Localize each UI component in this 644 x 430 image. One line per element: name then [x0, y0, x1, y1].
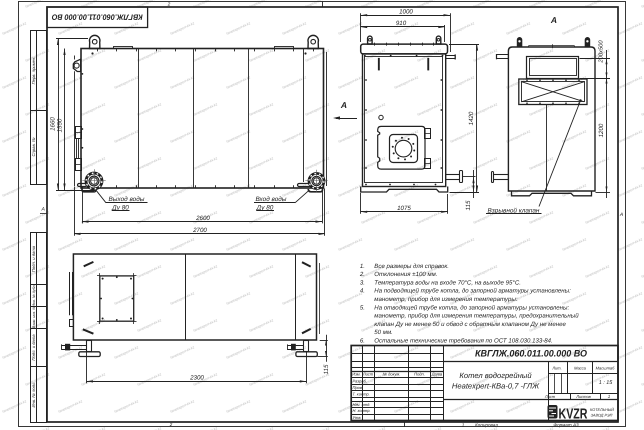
svg-text:heatexpert-kv.kz: heatexpert-kv.kz	[450, 237, 476, 252]
svg-text:Подп.: Подп.	[414, 372, 425, 377]
svg-text:heatexpert-kv.kz: heatexpert-kv.kz	[473, 264, 499, 279]
svg-text:Изм.: Изм.	[352, 372, 361, 377]
svg-text:Остальные технические требован: Остальные технические требования по ОСТ …	[374, 338, 552, 345]
svg-text:Масштаб: Масштаб	[596, 366, 615, 371]
svg-text:heatexpert-kv.kz: heatexpert-kv.kz	[417, 48, 443, 63]
svg-text:heatexpert-kv.kz: heatexpert-kv.kz	[394, 129, 420, 144]
svg-text:heatexpert-kv.kz: heatexpert-kv.kz	[338, 129, 364, 144]
svg-text:КВГЛЖ.060.011.00.000 ВО: КВГЛЖ.060.011.00.000 ВО	[52, 13, 143, 22]
svg-text:heatexpert-kv.kz: heatexpert-kv.kz	[226, 21, 252, 36]
svg-text:2300: 2300	[189, 375, 204, 382]
svg-text:1.: 1.	[360, 263, 365, 270]
svg-text:heatexpert-kv.kz: heatexpert-kv.kz	[114, 129, 140, 144]
svg-text:heatexpert-kv.kz: heatexpert-kv.kz	[2, 129, 28, 144]
svg-text:Пров.: Пров.	[353, 385, 364, 390]
svg-text:heatexpert-kv.kz: heatexpert-kv.kz	[585, 264, 611, 279]
svg-text:heatexpert-kv.kz: heatexpert-kv.kz	[338, 183, 364, 198]
svg-text:heatexpert-kv.kz: heatexpert-kv.kz	[193, 102, 219, 117]
svg-text:Нач. отд.: Нач. отд.	[353, 402, 371, 407]
svg-text:А: А	[550, 15, 557, 25]
svg-text:heatexpert-kv.kz: heatexpert-kv.kz	[137, 102, 163, 117]
svg-text:Лист: Лист	[362, 372, 374, 377]
svg-text:heatexpert-kv.kz: heatexpert-kv.kz	[506, 399, 532, 414]
svg-text:heatexpert-kv.kz: heatexpert-kv.kz	[114, 399, 140, 414]
svg-text:Лист: Лист	[544, 394, 556, 399]
svg-text:Перв. примен.: Перв. примен.	[31, 57, 36, 85]
svg-text:5.: 5.	[360, 304, 365, 311]
svg-text:ЗАВОД РЭП: ЗАВОД РЭП	[591, 414, 613, 418]
svg-text:heatexpert-kv.kz: heatexpert-kv.kz	[394, 183, 420, 198]
svg-text:На подводящей трубе котла, до: На подводящей трубе котла, до запорной а…	[374, 288, 571, 295]
svg-text:heatexpert-kv.kz: heatexpert-kv.kz	[193, 48, 219, 63]
svg-text:2: 2	[167, 2, 171, 7]
svg-text:heatexpert-kv.kz: heatexpert-kv.kz	[450, 183, 476, 198]
svg-text:1550: 1550	[57, 118, 64, 132]
svg-text:50 мм.: 50 мм.	[374, 329, 393, 336]
svg-text:heatexpert-kv.kz: heatexpert-kv.kz	[282, 21, 308, 36]
svg-text:heatexpert-kv.kz: heatexpert-kv.kz	[137, 264, 163, 279]
svg-text:heatexpert-kv.kz: heatexpert-kv.kz	[193, 156, 219, 171]
svg-text:heatexpert-kv.kz: heatexpert-kv.kz	[170, 291, 196, 306]
svg-text:heatexpert-kv.kz: heatexpert-kv.kz	[618, 21, 644, 36]
svg-text:Взам. инв. №: Взам. инв. №	[32, 306, 36, 328]
svg-text:2.: 2.	[359, 271, 365, 278]
svg-text:heatexpert-kv.kz: heatexpert-kv.kz	[618, 345, 644, 360]
svg-text:heatexpert-kv.kz: heatexpert-kv.kz	[193, 318, 219, 333]
svg-text:heatexpert-kv.kz: heatexpert-kv.kz	[506, 21, 532, 36]
svg-text:heatexpert-kv.kz: heatexpert-kv.kz	[282, 291, 308, 306]
svg-text:heatexpert-kv.kz: heatexpert-kv.kz	[114, 237, 140, 252]
svg-text:1 : 15: 1 : 15	[599, 380, 613, 386]
svg-text:heatexpert-kv.kz: heatexpert-kv.kz	[58, 291, 84, 306]
svg-text:Котел водогрейный: Котел водогрейный	[459, 371, 532, 380]
svg-text:heatexpert-kv.kz: heatexpert-kv.kz	[506, 237, 532, 252]
svg-text:heatexpert-kv.kz: heatexpert-kv.kz	[562, 129, 588, 144]
svg-text:heatexpert-kv.kz: heatexpert-kv.kz	[226, 183, 252, 198]
svg-text:heatexpert-kv.kz: heatexpert-kv.kz	[81, 156, 107, 171]
svg-text:115: 115	[465, 200, 472, 210]
svg-text:heatexpert-kv.kz: heatexpert-kv.kz	[2, 21, 28, 36]
svg-text:Дата: Дата	[431, 372, 443, 377]
svg-text:heatexpert-kv.kz: heatexpert-kv.kz	[506, 129, 532, 144]
svg-text:heatexpert-kv.kz: heatexpert-kv.kz	[81, 48, 107, 63]
svg-text:heatexpert-kv.kz: heatexpert-kv.kz	[529, 48, 555, 63]
svg-text:heatexpert-kv.kz: heatexpert-kv.kz	[226, 129, 252, 144]
svg-text:Масса: Масса	[574, 366, 587, 371]
svg-text:6.: 6.	[360, 338, 365, 345]
svg-text:Утв.: Утв.	[353, 415, 362, 420]
svg-text:2: 2	[169, 422, 173, 427]
svg-text:heatexpert-kv.kz: heatexpert-kv.kz	[114, 345, 140, 360]
svg-text:heatexpert-kv.kz: heatexpert-kv.kz	[450, 21, 476, 36]
svg-text:На отводящей трубе котла, до з: На отводящей трубе котла, до запорной ар…	[374, 304, 569, 311]
svg-text:heatexpert-kv.kz: heatexpert-kv.kz	[417, 102, 443, 117]
svg-text:Лит.: Лит.	[551, 366, 561, 371]
svg-text:Т. контр.: Т. контр.	[353, 391, 370, 396]
svg-text:3.: 3.	[360, 279, 365, 286]
svg-text:heatexpert-kv.kz: heatexpert-kv.kz	[394, 345, 420, 360]
svg-text:Инв. № дубл.: Инв. № дубл.	[32, 284, 36, 306]
svg-text:Справ. №: Справ. №	[31, 137, 36, 156]
svg-text:heatexpert-kv.kz: heatexpert-kv.kz	[137, 318, 163, 333]
svg-text:манометр, прибор для измерения: манометр, прибор для измерения температу…	[374, 313, 579, 320]
svg-text:А: А	[619, 212, 624, 218]
svg-text:heatexpert-kv.kz: heatexpert-kv.kz	[170, 345, 196, 360]
svg-text:2600: 2600	[195, 215, 210, 222]
svg-text:Копировал: Копировал	[475, 422, 498, 427]
svg-text:heatexpert-kv.kz: heatexpert-kv.kz	[450, 75, 476, 90]
svg-text:heatexpert-kv.kz: heatexpert-kv.kz	[114, 75, 140, 90]
svg-text:heatexpert-kv.kz: heatexpert-kv.kz	[249, 264, 275, 279]
svg-text:heatexpert-kv.kz: heatexpert-kv.kz	[81, 102, 107, 117]
svg-text:heatexpert-kv.kz: heatexpert-kv.kz	[450, 345, 476, 360]
svg-text:Н. контр.: Н. контр.	[353, 408, 371, 413]
svg-text:Вход воды: Вход воды	[255, 196, 286, 203]
svg-text:Подп. и дата: Подп. и дата	[31, 245, 36, 272]
svg-text:heatexpert-kv.kz: heatexpert-kv.kz	[249, 318, 275, 333]
svg-text:heatexpert-kv.kz: heatexpert-kv.kz	[226, 237, 252, 252]
svg-text:heatexpert-kv.kz: heatexpert-kv.kz	[618, 399, 644, 414]
svg-text:Подп. и дата: Подп. и дата	[31, 334, 36, 361]
svg-text:KVZR: KVZR	[559, 407, 588, 423]
svg-text:клапан Ду не менее 50 и обвод: клапан Ду не менее 50 и обвод с обратным…	[374, 321, 566, 328]
svg-text:heatexpert-kv.kz: heatexpert-kv.kz	[618, 129, 644, 144]
svg-text:heatexpert-kv.kz: heatexpert-kv.kz	[81, 210, 107, 225]
svg-text:heatexpert-kv.kz: heatexpert-kv.kz	[338, 75, 364, 90]
svg-text:heatexpert-kv.kz: heatexpert-kv.kz	[618, 237, 644, 252]
svg-text:1: 1	[462, 422, 465, 427]
svg-text:heatexpert-kv.kz: heatexpert-kv.kz	[170, 183, 196, 198]
svg-text:1660: 1660	[50, 117, 57, 131]
svg-text:А: А	[41, 207, 46, 213]
svg-text:1: 1	[608, 394, 611, 399]
svg-text:heatexpert-kv.kz: heatexpert-kv.kz	[114, 21, 140, 36]
svg-text:heatexpert-kv.kz: heatexpert-kv.kz	[618, 75, 644, 90]
svg-text:heatexpert-kv.kz: heatexpert-kv.kz	[226, 291, 252, 306]
svg-text:heatexpert-kv.kz: heatexpert-kv.kz	[529, 156, 555, 171]
svg-text:heatexpert-kv.kz: heatexpert-kv.kz	[305, 210, 331, 225]
svg-text:Все размеры для справок.: Все размеры для справок.	[374, 263, 449, 270]
svg-text:heatexpert-kv.kz: heatexpert-kv.kz	[226, 75, 252, 90]
svg-text:heatexpert-kv.kz: heatexpert-kv.kz	[114, 291, 140, 306]
svg-text:4.: 4.	[360, 288, 365, 295]
svg-text:heatexpert-kv.kz: heatexpert-kv.kz	[338, 21, 364, 36]
svg-text:№ докум.: № докум.	[383, 372, 401, 377]
svg-text:heatexpert-kv.kz: heatexpert-kv.kz	[137, 48, 163, 63]
svg-text:heatexpert-kv.kz: heatexpert-kv.kz	[58, 237, 84, 252]
svg-text:heatexpert-kv.kz: heatexpert-kv.kz	[170, 399, 196, 414]
svg-text:115: 115	[323, 364, 330, 374]
svg-text:heatexpert-kv.kz: heatexpert-kv.kz	[2, 183, 28, 198]
svg-text:Инв. № подл.: Инв. № подл.	[31, 382, 36, 408]
svg-text:heatexpert-kv.kz: heatexpert-kv.kz	[338, 237, 364, 252]
svg-text:heatexpert-kv.kz: heatexpert-kv.kz	[249, 210, 275, 225]
svg-text:1200: 1200	[598, 123, 605, 137]
svg-text:heatexpert-kv.kz: heatexpert-kv.kz	[58, 75, 84, 90]
svg-text:heatexpert-kv.kz: heatexpert-kv.kz	[2, 345, 28, 360]
svg-text:heatexpert-kv.kz: heatexpert-kv.kz	[618, 183, 644, 198]
svg-text:heatexpert-kv.kz: heatexpert-kv.kz	[137, 372, 163, 387]
svg-text:1420: 1420	[468, 111, 475, 125]
svg-text:heatexpert-kv.kz: heatexpert-kv.kz	[562, 21, 588, 36]
svg-text:heatexpert-kv.kz: heatexpert-kv.kz	[193, 264, 219, 279]
svg-text:Листов: Листов	[575, 394, 591, 399]
svg-text:heatexpert-kv.kz: heatexpert-kv.kz	[81, 372, 107, 387]
svg-text:heatexpert-kv.kz: heatexpert-kv.kz	[394, 75, 420, 90]
svg-text:heatexpert-kv.kz: heatexpert-kv.kz	[249, 372, 275, 387]
svg-text:heatexpert-kv.kz: heatexpert-kv.kz	[585, 318, 611, 333]
svg-text:heatexpert-kv.kz: heatexpert-kv.kz	[562, 237, 588, 252]
svg-text:heatexpert-kv.kz: heatexpert-kv.kz	[282, 399, 308, 414]
svg-text:2700: 2700	[192, 227, 207, 234]
svg-text:1075: 1075	[397, 205, 411, 212]
svg-text:heatexpert-kv.kz: heatexpert-kv.kz	[2, 75, 28, 90]
svg-text:200х500: 200х500	[597, 40, 604, 64]
svg-text:heatexpert-kv.kz: heatexpert-kv.kz	[170, 21, 196, 36]
svg-text:КОТЕЛЬНЫЙ: КОТЕЛЬНЫЙ	[590, 407, 614, 412]
svg-text:КВГЛЖ.060.011.00.000 ВО: КВГЛЖ.060.011.00.000 ВО	[475, 347, 588, 358]
svg-text:heatexpert-kv.kz: heatexpert-kv.kz	[249, 156, 275, 171]
svg-text:heatexpert-kv.kz: heatexpert-kv.kz	[249, 48, 275, 63]
svg-text:heatexpert-kv.kz: heatexpert-kv.kz	[2, 237, 28, 252]
svg-text:heatexpert-kv.kz: heatexpert-kv.kz	[282, 237, 308, 252]
svg-text:heatexpert-kv.kz: heatexpert-kv.kz	[170, 75, 196, 90]
svg-text:Heatexpert-КВа-0,7 -ГЛЖ: Heatexpert-КВа-0,7 -ГЛЖ	[452, 382, 540, 391]
svg-text:heatexpert-kv.kz: heatexpert-kv.kz	[137, 156, 163, 171]
svg-text:heatexpert-kv.kz: heatexpert-kv.kz	[585, 210, 611, 225]
svg-text:Разраб.: Разраб.	[353, 378, 367, 383]
svg-text:heatexpert-kv.kz: heatexpert-kv.kz	[450, 129, 476, 144]
svg-text:heatexpert-kv.kz: heatexpert-kv.kz	[249, 102, 275, 117]
svg-text:heatexpert-kv.kz: heatexpert-kv.kz	[58, 21, 84, 36]
svg-text:heatexpert-kv.kz: heatexpert-kv.kz	[2, 399, 28, 414]
svg-text:А: А	[340, 100, 347, 110]
svg-text:heatexpert-kv.kz: heatexpert-kv.kz	[226, 345, 252, 360]
svg-text:heatexpert-kv.kz: heatexpert-kv.kz	[58, 399, 84, 414]
svg-text:Выход воды: Выход воды	[109, 196, 145, 203]
svg-text:910: 910	[396, 20, 407, 27]
svg-text:heatexpert-kv.kz: heatexpert-kv.kz	[2, 291, 28, 306]
svg-text:heatexpert-kv.kz: heatexpert-kv.kz	[170, 129, 196, 144]
svg-text:heatexpert-kv.kz: heatexpert-kv.kz	[170, 237, 196, 252]
svg-text:heatexpert-kv.kz: heatexpert-kv.kz	[226, 399, 252, 414]
svg-text:Формат А3: Формат А3	[553, 422, 579, 427]
svg-text:heatexpert-kv.kz: heatexpert-kv.kz	[137, 210, 163, 225]
svg-text:heatexpert-kv.kz: heatexpert-kv.kz	[450, 399, 476, 414]
svg-text:1000: 1000	[399, 8, 413, 15]
svg-text:heatexpert-kv.kz: heatexpert-kv.kz	[529, 264, 555, 279]
svg-text:heatexpert-kv.kz: heatexpert-kv.kz	[394, 237, 420, 252]
svg-text:heatexpert-kv.kz: heatexpert-kv.kz	[417, 210, 443, 225]
svg-text:Температура воды на входе 70°С: Температура воды на входе 70°С, на выход…	[374, 279, 521, 286]
svg-text:heatexpert-kv.kz: heatexpert-kv.kz	[618, 291, 644, 306]
svg-text:Отклонения ±100 мм.: Отклонения ±100 мм.	[374, 271, 437, 278]
svg-text:манометр, прибор для измерения: манометр, прибор для измерения температу…	[374, 296, 518, 303]
